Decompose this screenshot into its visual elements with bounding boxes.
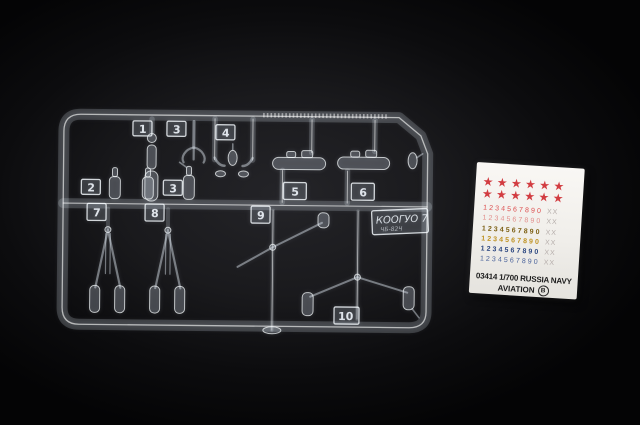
part-tag-3a: 3: [167, 121, 186, 136]
tag-number: 4: [222, 127, 230, 140]
part-4-shape: [214, 144, 252, 177]
tag-number: 10: [338, 310, 354, 323]
tag-number: 5: [291, 185, 299, 198]
star-marking-rows: ★★★★★★★★★★★★: [475, 175, 584, 206]
part-6-helicopter: [338, 150, 390, 170]
sprue-letter-badge: B: [537, 285, 549, 297]
tag-number: 2: [87, 181, 95, 194]
number-row-cross-marks: XX: [543, 260, 555, 268]
part-tag-3b: 3: [163, 180, 182, 195]
photo-stage: 1 3 4 2 3 5 6: [0, 0, 640, 425]
part-tag-1: 1: [133, 121, 152, 136]
number-row-digits: 1234567890: [480, 256, 540, 267]
number-row-cross-marks: XX: [546, 219, 558, 227]
decal-sheet: ★★★★★★★★★★★★ 1234567890XX1234567890XX123…: [469, 162, 585, 300]
part-tag-10: 10: [334, 307, 359, 324]
part-tag-5: 5: [283, 182, 306, 199]
teardrop-part: [408, 153, 423, 169]
mold-tag: КООГУО 7 ЧБ-82Ч: [372, 208, 430, 234]
part-5-helicopter: [273, 150, 326, 170]
tag-number: 8: [151, 207, 159, 220]
part-tag-9: 9: [251, 206, 270, 223]
number-row-cross-marks: XX: [545, 229, 557, 237]
part-tag-4: 4: [216, 125, 235, 140]
number-row-cross-marks: XX: [545, 239, 557, 247]
tag-number: 3: [173, 123, 181, 136]
tag-number: 1: [139, 123, 147, 136]
number-marking-rows: 1234567890XX1234567890XX1234567890XX1234…: [471, 203, 583, 271]
part-8-tripod: [150, 209, 186, 313]
part-9-mast: [237, 210, 329, 334]
part-tag-6: 6: [351, 183, 374, 200]
number-row-cross-marks: XX: [547, 208, 559, 216]
part-7-tripod: [90, 208, 126, 312]
number-row-digits: 1234567890: [482, 215, 542, 226]
number-row-cross-marks: XX: [544, 250, 556, 258]
part-tag-8: 8: [145, 204, 164, 221]
part-tag-2: 2: [81, 179, 100, 194]
tag-number: 9: [257, 209, 265, 222]
tag-number: 6: [359, 186, 367, 199]
mold-tag-line2: ЧБ-82Ч: [380, 226, 402, 234]
tag-number: 3: [169, 182, 177, 195]
tag-number: 7: [93, 206, 101, 219]
decal-aviation-label: AVIATION: [497, 283, 535, 294]
part-tag-7: 7: [87, 203, 106, 220]
